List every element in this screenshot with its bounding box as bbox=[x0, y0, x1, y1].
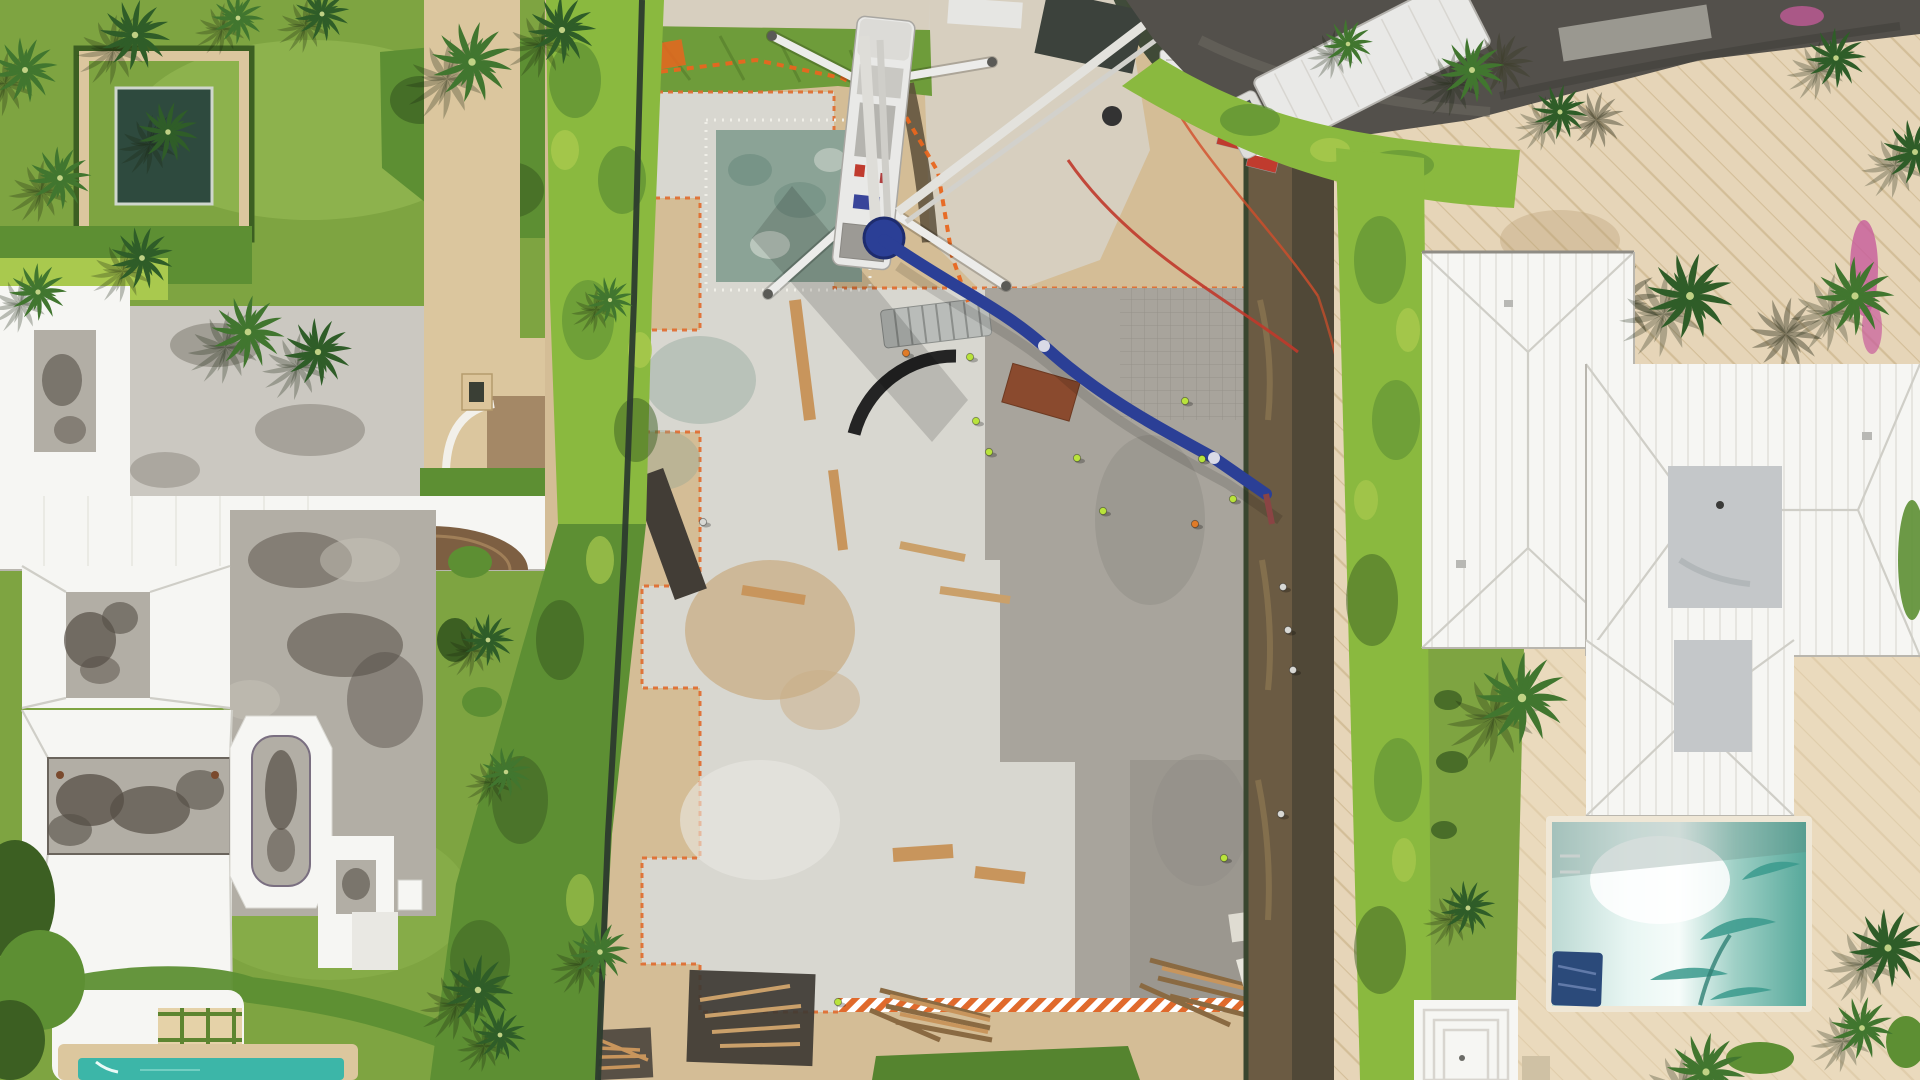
pool-cover bbox=[1551, 951, 1603, 1007]
left-pool bbox=[58, 1044, 358, 1080]
pool-water bbox=[78, 1058, 344, 1080]
scene-svg bbox=[0, 0, 1920, 1080]
flat-roof-section bbox=[1668, 466, 1782, 608]
aerial-photo-construction-site bbox=[0, 0, 1920, 1080]
right-pool bbox=[1546, 816, 1812, 1012]
